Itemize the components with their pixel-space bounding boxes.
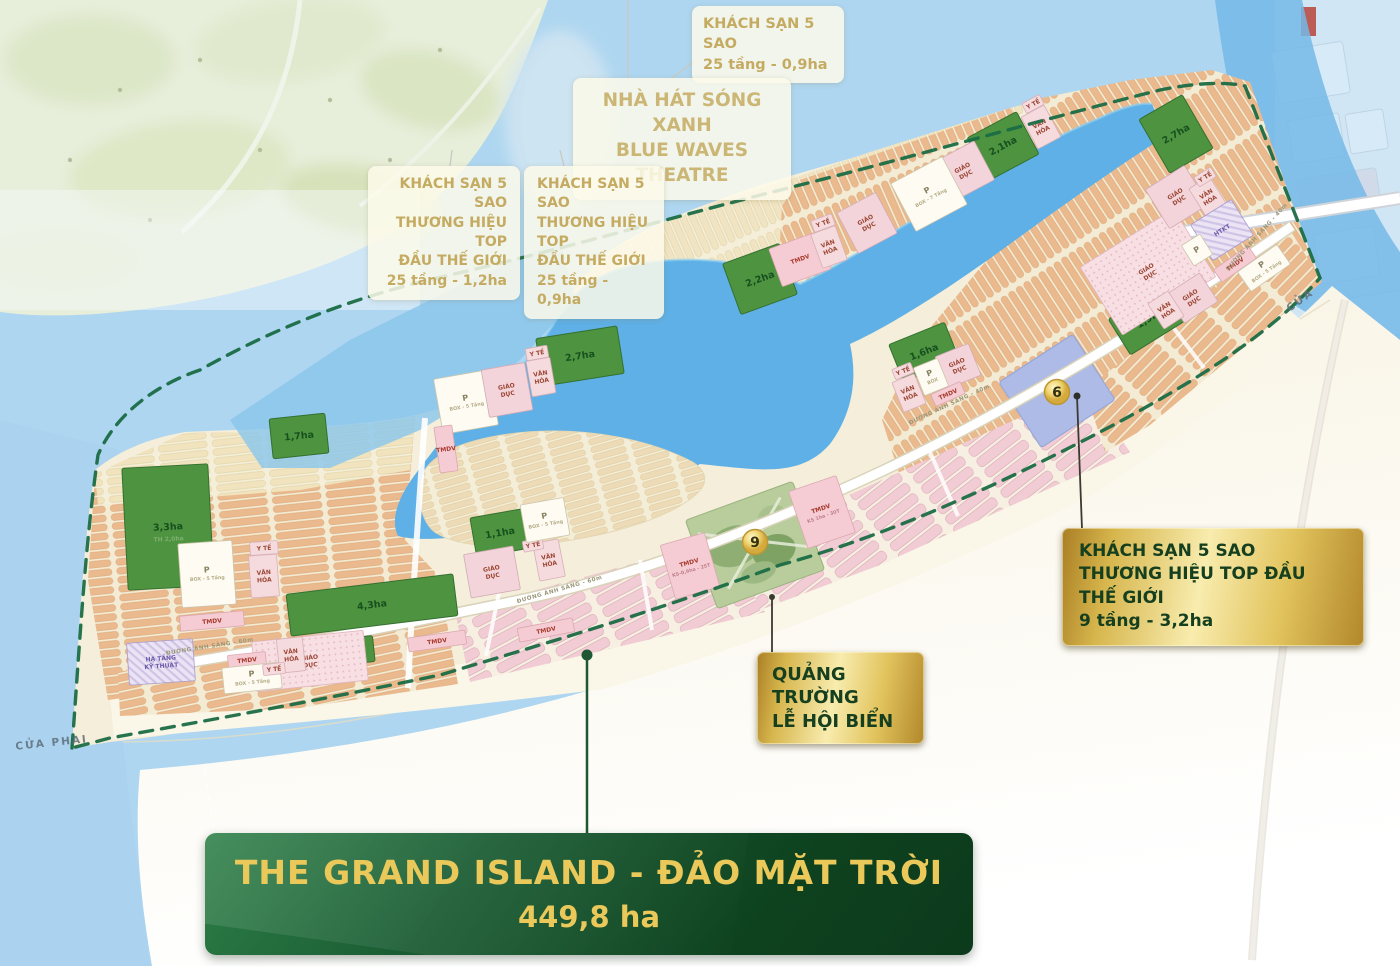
callout-line: THƯƠNG HIỆU TOP ĐẦU THẾ GIỚI [1079, 563, 1347, 610]
masterplan-canvas: 3,3haTH 2,0ha1,7ha2,7ha2,2ha2,1ha2,7ha1,… [0, 0, 1400, 966]
facility-parcel-health: Y TẾ [262, 662, 285, 675]
callout-festival-plaza: QUẢNG TRƯỜNG LỄ HỘI BIỂN [757, 652, 924, 744]
park-parcel: 1,7ha [269, 413, 329, 459]
callout-line: KHÁCH SẠN 5 SAO [537, 175, 651, 214]
callout-line: KHÁCH SẠN 5 SAO [1079, 540, 1347, 563]
callout-line: NHÀ HÁT SÓNG XANH [581, 89, 783, 139]
callout-hotel-5-star-left-2: KHÁCH SẠN 5 SAO THƯƠNG HIỆU TOP ĐẦU THẾ … [524, 166, 664, 319]
title-sheen [205, 833, 753, 955]
callout-line: ĐẦU THẾ GIỚI [537, 252, 651, 271]
facility-parcel-culture: VĂNHÓA [249, 554, 280, 598]
project-title-plaque: THE GRAND ISLAND - ĐẢO MẶT TRỜI 449,8 ha [205, 833, 973, 955]
marker-number: 6 [1052, 385, 1062, 401]
callout-line: ĐẦU THẾ GIỚI [381, 252, 507, 271]
facility-parcel-edu: GIÁODỤC [464, 546, 521, 598]
facility-parcel-parking: PBOX - 5 Tầng [178, 540, 236, 608]
callout-line: THƯƠNG HIỆU TOP [537, 214, 651, 253]
callout-line: LỄ HỘI BIỂN [772, 710, 909, 733]
callout-line: THƯƠNG HIỆU TOP [381, 214, 507, 253]
callout-hotel-5-star-right: KHÁCH SẠN 5 SAO THƯƠNG HIỆU TOP ĐẦU THẾ … [1062, 528, 1364, 646]
callout-hotel-5-star-left-1: KHÁCH SẠN 5 SAO THƯƠNG HIỆU TOP ĐẦU THẾ … [368, 166, 520, 300]
park-area-label: 3,3ha [153, 521, 184, 534]
callout-line: KHÁCH SẠN 5 SAO [381, 175, 507, 214]
facility-label: P [203, 565, 210, 574]
facility-parcel-htkt: HẠ TẦNGKỸ THUẬT [127, 639, 196, 686]
numbered-marker-6: 6 [1045, 380, 1070, 405]
facility-parcel-health: Y TẾ [250, 541, 279, 556]
marker-number: 9 [750, 535, 760, 551]
facility-label: HÓA [257, 576, 272, 584]
facility-label: P [248, 669, 255, 679]
callout-line: 9 tầng - 3,2ha [1079, 610, 1347, 633]
project-area: 449,8 ha [205, 900, 973, 934]
callout-line: QUẢNG TRƯỜNG [772, 663, 909, 710]
callout-line: 25 tầng - 0,9ha [703, 55, 833, 75]
numbered-marker-9: 9 [743, 530, 768, 555]
facility-parcel-parking: PBOX - 5 Tầng [520, 497, 570, 542]
callout-line: KHÁCH SẠN 5 SAO [703, 14, 833, 55]
callout-hotel-5-star-top: KHÁCH SẠN 5 SAO 25 tầng - 0,9ha [692, 6, 844, 83]
callout-line: 25 tầng - 0,9ha [537, 272, 651, 311]
facility-label: Y TẾ [255, 544, 272, 553]
facility-parcel-edu: GIÁODỤC [481, 363, 533, 418]
callout-line: 25 tầng - 1,2ha [381, 272, 507, 291]
project-title: THE GRAND ISLAND - ĐẢO MẶT TRỜI [205, 853, 973, 892]
